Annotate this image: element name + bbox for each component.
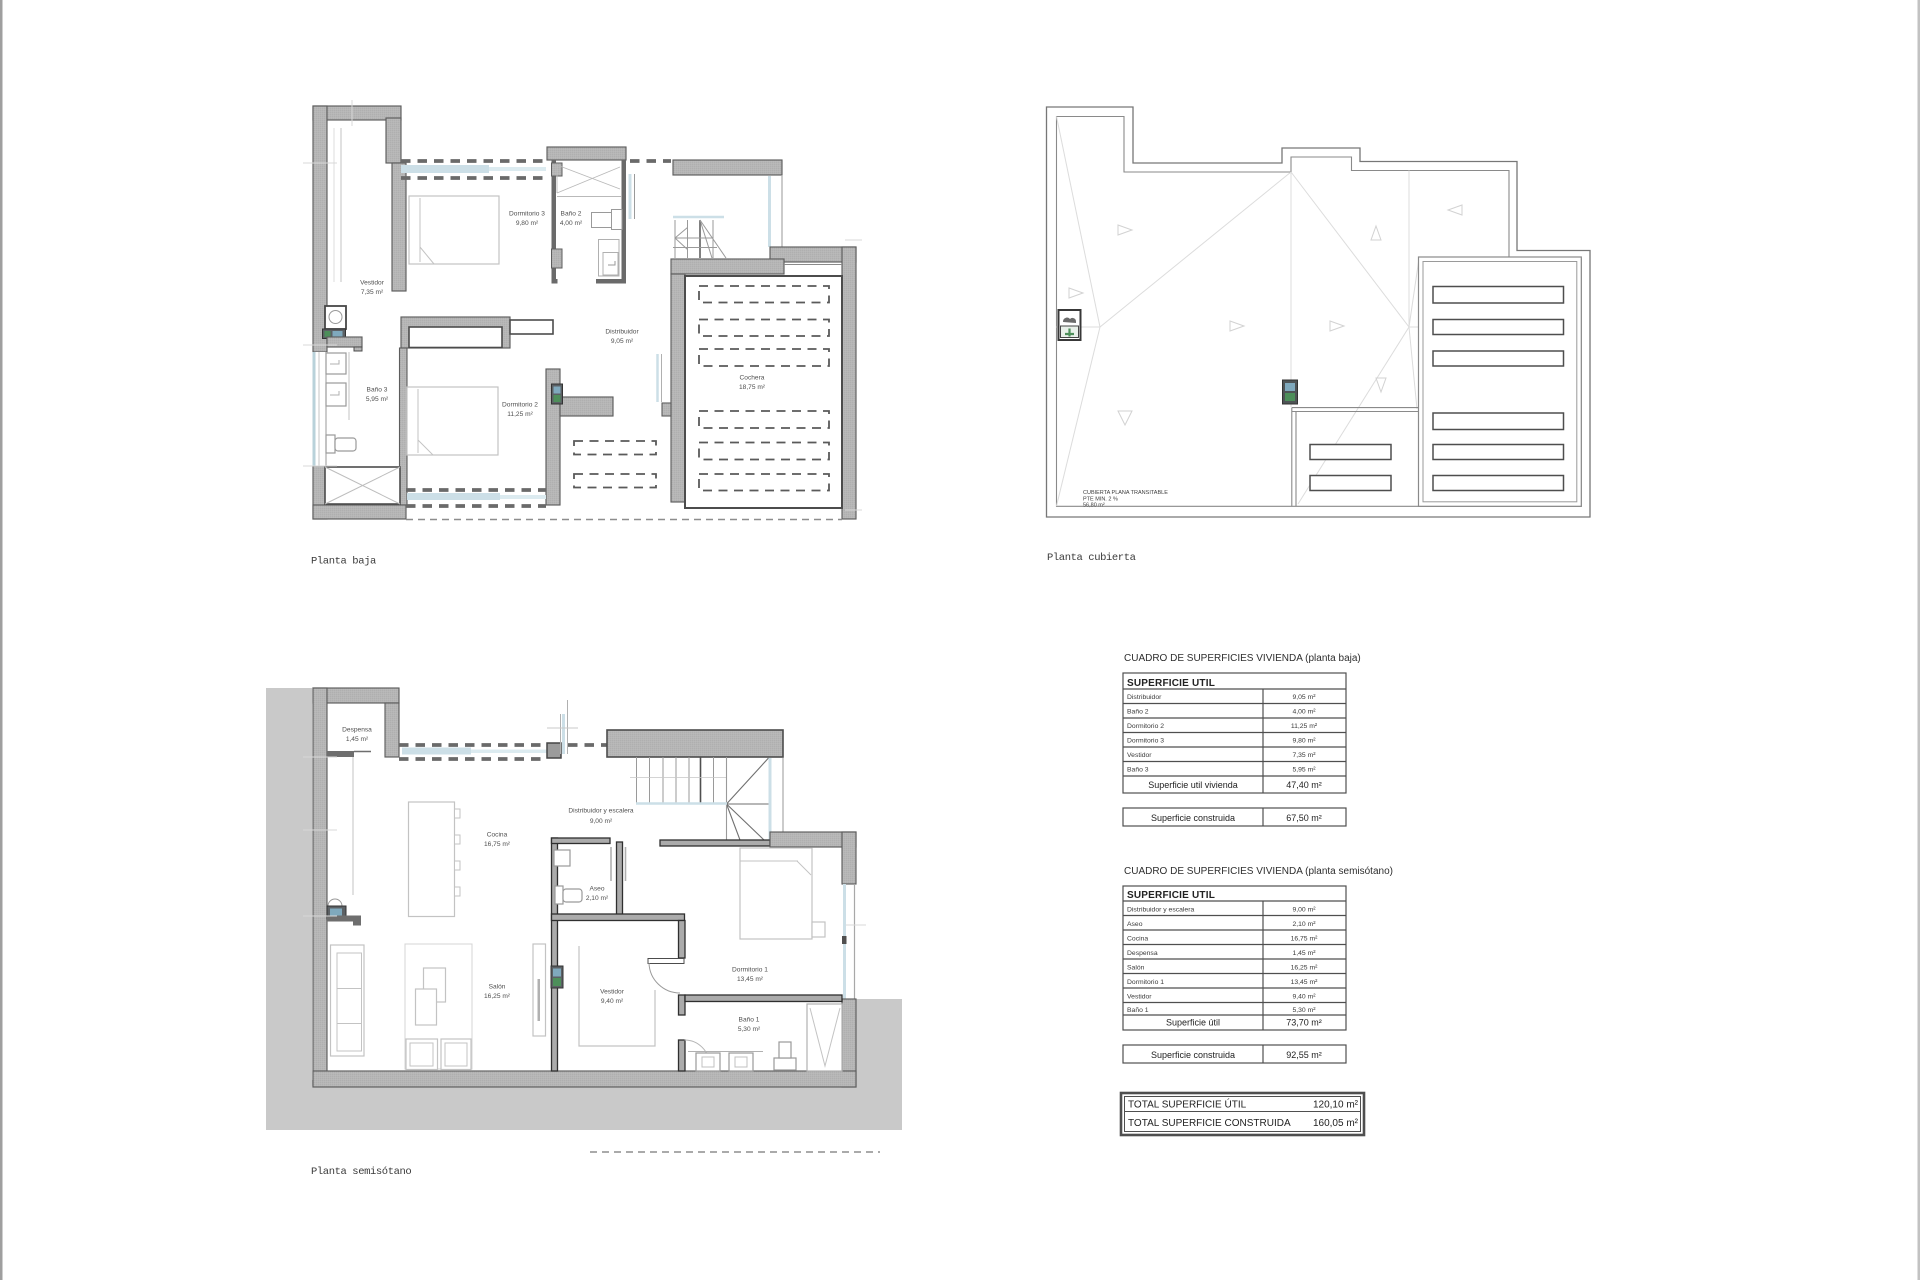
svg-text:Cochera: Cochera — [740, 375, 765, 382]
svg-text:Superficie construida: Superficie construida — [1151, 813, 1235, 823]
svg-text:Distribuidor: Distribuidor — [1127, 694, 1162, 701]
svg-text:4,00 m²: 4,00 m² — [1292, 709, 1316, 716]
svg-text:56,80 m²: 56,80 m² — [1083, 503, 1105, 509]
svg-text:7,35 m²: 7,35 m² — [361, 289, 384, 296]
svg-text:7,35 m²: 7,35 m² — [1292, 752, 1316, 759]
svg-text:Vestidor: Vestidor — [600, 989, 625, 996]
svg-text:Salón: Salón — [1127, 965, 1145, 972]
svg-text:16,75 m²: 16,75 m² — [484, 841, 511, 848]
svg-text:Superficie construida: Superficie construida — [1151, 1050, 1235, 1060]
svg-text:Salón: Salón — [489, 984, 506, 991]
svg-text:SUPERFICIE UTIL: SUPERFICIE UTIL — [1127, 890, 1215, 901]
svg-text:9,00 m²: 9,00 m² — [1292, 907, 1316, 914]
svg-text:Dormitorio 3: Dormitorio 3 — [1127, 738, 1164, 745]
svg-text:73,70 m²: 73,70 m² — [1286, 1018, 1322, 1028]
svg-text:Aseo: Aseo — [1127, 921, 1143, 928]
svg-text:Dormitorio 1: Dormitorio 1 — [1127, 979, 1164, 986]
svg-text:SUPERFICIE UTIL: SUPERFICIE UTIL — [1127, 678, 1215, 689]
svg-text:Baño 3: Baño 3 — [1127, 767, 1149, 774]
svg-text:Baño 2: Baño 2 — [561, 211, 582, 218]
svg-text:2,10 m²: 2,10 m² — [1292, 921, 1316, 928]
svg-text:Vestidor: Vestidor — [1127, 752, 1152, 759]
svg-text:Dormitorio 1: Dormitorio 1 — [732, 967, 768, 974]
svg-text:18,75 m²: 18,75 m² — [739, 384, 766, 391]
svg-text:TOTAL SUPERFICIE ÚTIL: TOTAL SUPERFICIE ÚTIL — [1128, 1098, 1247, 1111]
svg-text:9,40 m²: 9,40 m² — [601, 998, 624, 1005]
svg-text:9,05 m²: 9,05 m² — [1292, 694, 1316, 701]
svg-text:92,55 m²: 92,55 m² — [1286, 1050, 1322, 1060]
svg-text:9,80 m²: 9,80 m² — [516, 220, 539, 227]
svg-text:Despensa: Despensa — [342, 727, 372, 734]
svg-text:CUADRO DE SUPERFICIES VIVIENDA: CUADRO DE SUPERFICIES VIVIENDA (planta b… — [1124, 653, 1361, 664]
svg-text:Vestidor: Vestidor — [360, 280, 385, 287]
svg-text:Distribuidor y escalera: Distribuidor y escalera — [1127, 907, 1194, 914]
svg-text:Distribuidor: Distribuidor — [605, 329, 639, 336]
svg-text:13,45 m²: 13,45 m² — [737, 976, 764, 983]
svg-text:160,05 m²: 160,05 m² — [1313, 1118, 1359, 1129]
svg-text:Superficie útil: Superficie útil — [1166, 1018, 1220, 1028]
svg-text:CUADRO DE SUPERFICIES VIVIENDA: CUADRO DE SUPERFICIES VIVIENDA (planta s… — [1124, 866, 1393, 877]
svg-text:9,40 m²: 9,40 m² — [1292, 994, 1316, 1001]
svg-text:5,95 m²: 5,95 m² — [1292, 767, 1316, 774]
svg-text:Baño 1: Baño 1 — [739, 1017, 760, 1024]
svg-text:67,50 m²: 67,50 m² — [1286, 813, 1322, 823]
svg-text:5,30 m²: 5,30 m² — [738, 1026, 761, 1033]
svg-text:13,45 m²: 13,45 m² — [1291, 979, 1319, 986]
svg-text:5,30 m²: 5,30 m² — [1292, 1007, 1316, 1014]
svg-text:CUBIERTA PLANA TRANSITABLE: CUBIERTA PLANA TRANSITABLE — [1083, 490, 1168, 496]
svg-text:Distribuidor y escalera: Distribuidor y escalera — [568, 808, 634, 815]
svg-text:120,10 m²: 120,10 m² — [1313, 1100, 1359, 1111]
svg-text:16,75 m²: 16,75 m² — [1291, 936, 1319, 943]
svg-text:9,00 m²: 9,00 m² — [590, 818, 613, 825]
svg-text:Planta baja: Planta baja — [311, 556, 376, 568]
svg-text:1,45 m²: 1,45 m² — [1292, 950, 1316, 957]
svg-text:Aseo: Aseo — [589, 886, 604, 893]
svg-text:11,25 m²: 11,25 m² — [507, 411, 533, 418]
svg-text:9,80 m²: 9,80 m² — [1292, 738, 1316, 745]
svg-text:2,10 m²: 2,10 m² — [586, 895, 609, 902]
svg-text:Superficie util vivienda: Superficie util vivienda — [1148, 780, 1238, 790]
svg-text:Cocina: Cocina — [1127, 936, 1148, 943]
svg-text:Cocina: Cocina — [487, 832, 508, 839]
svg-text:Baño 3: Baño 3 — [367, 387, 388, 394]
svg-text:Baño 2: Baño 2 — [1127, 709, 1149, 716]
svg-text:Dormitorio 2: Dormitorio 2 — [1127, 723, 1164, 730]
svg-text:1,45 m²: 1,45 m² — [346, 736, 369, 743]
svg-text:16,25 m²: 16,25 m² — [484, 993, 511, 1000]
svg-text:Planta semisótano: Planta semisótano — [311, 1166, 411, 1178]
svg-text:16,25 m²: 16,25 m² — [1291, 965, 1319, 972]
svg-text:47,40 m²: 47,40 m² — [1286, 780, 1322, 790]
svg-text:5,95 m²: 5,95 m² — [366, 396, 389, 403]
svg-text:Dormitorio 2: Dormitorio 2 — [502, 402, 538, 409]
svg-text:9,05 m²: 9,05 m² — [611, 338, 634, 345]
svg-text:Dormitorio 3: Dormitorio 3 — [509, 211, 545, 218]
svg-text:4,00 m²: 4,00 m² — [560, 220, 583, 227]
svg-text:11,25 m²: 11,25 m² — [1291, 723, 1318, 730]
svg-text:TOTAL SUPERFICIE CONSTRUIDA: TOTAL SUPERFICIE CONSTRUIDA — [1128, 1118, 1291, 1129]
svg-text:Planta cubierta: Planta cubierta — [1047, 552, 1136, 564]
svg-text:Vestidor: Vestidor — [1127, 994, 1152, 1001]
svg-text:Despensa: Despensa — [1127, 950, 1158, 957]
svg-text:Baño 1: Baño 1 — [1127, 1007, 1149, 1014]
